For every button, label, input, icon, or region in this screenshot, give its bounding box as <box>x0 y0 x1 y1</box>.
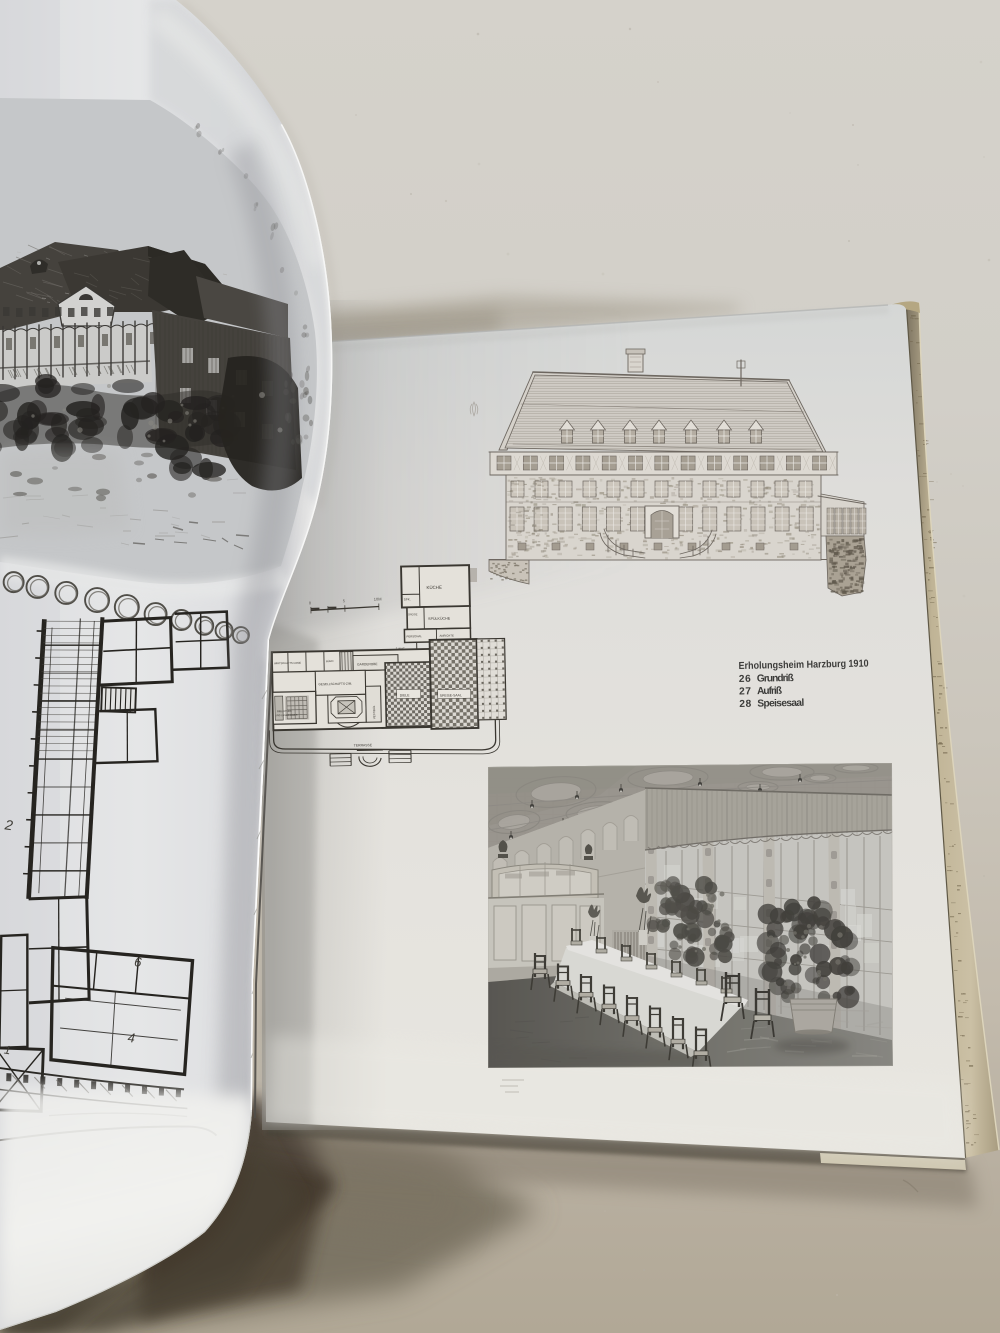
svg-text:SPÜLKÜCHE: SPÜLKÜCHE <box>428 617 451 621</box>
svg-text:BIBLIOTHEK: BIBLIOTHEK <box>277 710 292 713</box>
svg-text:10M: 10M <box>374 596 382 601</box>
svg-text:SPEISE-SAAL: SPEISE-SAAL <box>440 693 462 697</box>
svg-text:DIELE: DIELE <box>400 693 411 697</box>
svg-text:ANRICHTE: ANRICHTE <box>439 633 454 637</box>
svg-text:SPK.: SPK. <box>404 597 411 601</box>
svg-text:TERRASSE: TERRASSE <box>354 743 373 747</box>
svg-text:28Speisesaal: 28Speisesaal <box>739 698 804 710</box>
svg-text:SPEISE: SPEISE <box>408 612 418 616</box>
svg-text:BÜRO: BÜRO <box>326 659 334 663</box>
svg-text:GESELLSCHAFTS-ZIM.: GESELLSCHAFTS-ZIM. <box>318 682 352 687</box>
svg-text:GARDEROBE: GARDEROBE <box>357 662 377 666</box>
svg-text:UND LESEZIMMER: UND LESEZIMMER <box>275 714 298 717</box>
svg-text:WIRTSCHAFTS-DAME: WIRTSCHAFTS-DAME <box>274 661 301 666</box>
svg-text:27Aufriß: 27Aufriß <box>739 686 782 698</box>
svg-text:PERSONAL: PERSONAL <box>406 634 422 638</box>
svg-text:VESTIBÜL: VESTIBÜL <box>372 705 376 719</box>
svg-text:26Grundriß: 26Grundriß <box>739 673 794 685</box>
svg-text:KÜCHE: KÜCHE <box>426 585 442 590</box>
